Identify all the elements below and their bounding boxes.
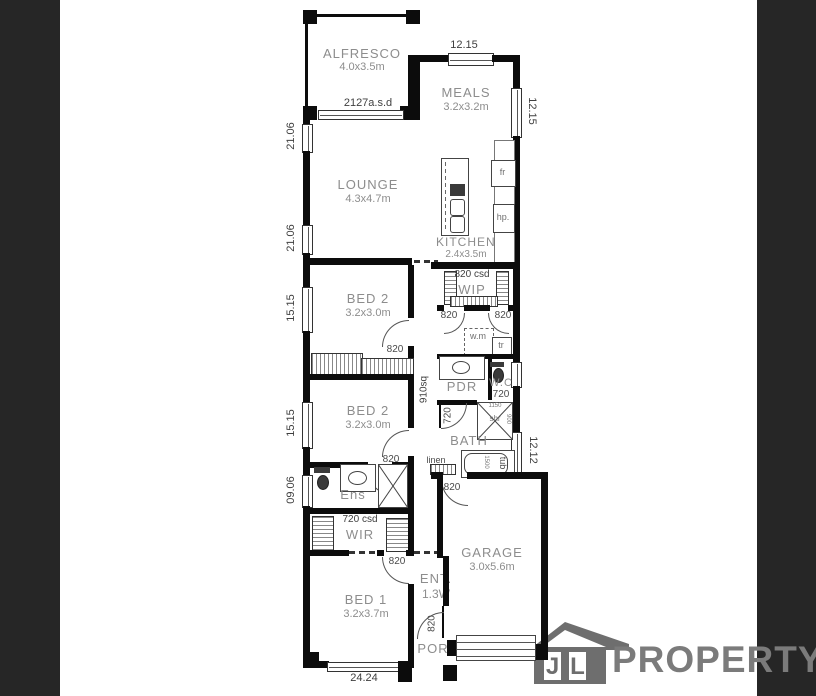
room-size-bed2-upper: 3.2x3.0m [338,307,398,319]
room-size-bed2-lower: 3.2x3.0m [338,419,398,431]
wall-segment [513,55,520,88]
dimension-right-lower: 12.12 [527,430,539,470]
robe-shelf [386,518,410,552]
window [511,88,522,138]
basin [452,361,470,374]
toilet-tank [314,467,330,473]
room-label-wir: WIR [342,527,378,542]
wall-segment [431,472,443,479]
room-label-bath: BATH [444,433,494,448]
room-label-kitchen: KITCHEN [436,235,492,249]
wall-segment [303,331,310,402]
tub-length-label: 1500 [483,453,489,471]
toilet-tank [490,362,504,367]
fridge-label: fr [493,167,512,177]
window [302,402,313,449]
basin [348,471,367,485]
door-size-label: 820 [384,556,410,567]
wall-segment [513,386,520,432]
room-size-alfresco: 4.0x3.5m [332,61,392,73]
dimension-top: 12.15 [442,39,486,51]
sink-tap [450,184,465,196]
wall-segment [303,447,310,475]
opening-dashes [414,551,438,554]
trough-label: tr [492,340,510,350]
wall-segment [467,472,548,479]
room-label-pdr: PDR [442,379,482,394]
floor-plan: ALFRESCO 4.0x3.5m 2127a.s.d 12.15 MEALS … [0,0,816,696]
wall-segment [464,305,490,311]
wall-segment [310,258,412,265]
door-size-label: 720 [443,402,454,430]
wall-segment [310,374,414,380]
floor-plan-image: J L PROPERTY ALFRESCO 4.0x3.5m 2127a.s.d… [0,0,816,696]
window [448,53,494,66]
shower-depth-label: 900 [505,411,511,427]
wall-post [534,644,548,660]
room-size-entry: 1.3W [414,587,458,601]
door-size-label: 820 [490,310,516,321]
wall-segment [303,151,310,225]
porch-post [443,665,457,681]
door-arc [382,430,409,457]
sink-bowl [450,199,465,216]
robe-shelf [311,353,363,376]
hall-dimension: 910sq [419,370,430,410]
tub-label: tub [498,453,508,473]
wall-segment [310,14,410,17]
window [302,225,313,255]
slider-label: 2127a.s.d [334,97,402,109]
sliding-door [318,110,404,120]
dimension-left-2: 21.06 [285,218,297,258]
dimension-left-3: 15.15 [285,288,297,328]
window [327,662,401,672]
dimension-right-upper: 12.15 [526,91,538,131]
room-label-meals: MEALS [438,85,494,100]
room-label-wc: W.C [486,377,516,389]
door-size-label: 820 [436,310,462,321]
room-label-ens: Ens [336,487,370,502]
room-size-garage: 3.0x5.6m [462,561,522,573]
room-size-meals: 3.2x3.2m [437,101,495,113]
wip-slider-label: 820 csd [447,269,497,280]
window [302,475,313,508]
toilet-bowl [317,475,329,490]
dimension-bottom: 24.24 [338,672,390,684]
island-overhang-line [445,162,446,230]
room-label-lounge: LOUNGE [336,177,400,192]
wall-segment [437,479,443,558]
room-size-kitchen: 2.4x3.5m [442,249,490,260]
room-size-bed1: 3.2x3.7m [334,608,398,620]
shower-box [378,464,408,508]
wall-segment [310,550,349,556]
door-size-label: 820 [382,344,408,355]
room-label-alfresco: ALFRESCO [322,46,402,61]
room-label-porch: POR [414,641,452,656]
room-size-lounge: 4.3x4.7m [340,193,396,205]
wall-post [406,10,420,24]
room-label-entry: ENT. [412,571,460,586]
washer-label: w.m [464,331,492,341]
hotplate-label: hp. [494,212,512,222]
window [302,287,313,333]
wall-segment [305,14,308,114]
wall-segment [418,55,448,62]
door-arc [382,320,409,347]
wall-segment [408,265,414,318]
dimension-left-5: 09.06 [285,470,297,510]
room-label-bed2-lower: BED 2 [338,403,398,418]
wall-segment [377,550,384,556]
front-door-size-label: 820 [427,610,438,638]
dimension-left-1: 21.06 [285,116,297,156]
wall-segment [443,556,449,606]
door-size-label: 720 [488,389,514,400]
room-label-bed1: BED 1 [336,592,396,607]
wall-segment [431,262,520,269]
wall-segment [303,506,310,654]
wall-segment [303,253,310,287]
cavity-slider-dashes [349,551,377,554]
room-label-bed2-upper: BED 2 [338,291,398,306]
wall-segment [541,472,548,648]
robe-shelf [312,516,334,552]
sink-bowl [450,216,465,233]
shower-width-label: 1150 [484,403,506,409]
dimension-left-4: 15.15 [285,403,297,443]
window [302,124,313,153]
garage-panel-door [456,635,536,661]
shower-label: shr [486,414,504,423]
wall-segment [408,55,420,120]
wir-slider-label: 720 csd [334,514,386,525]
room-label-wip: WIP [452,282,492,297]
room-label-garage: GARAGE [458,545,526,560]
